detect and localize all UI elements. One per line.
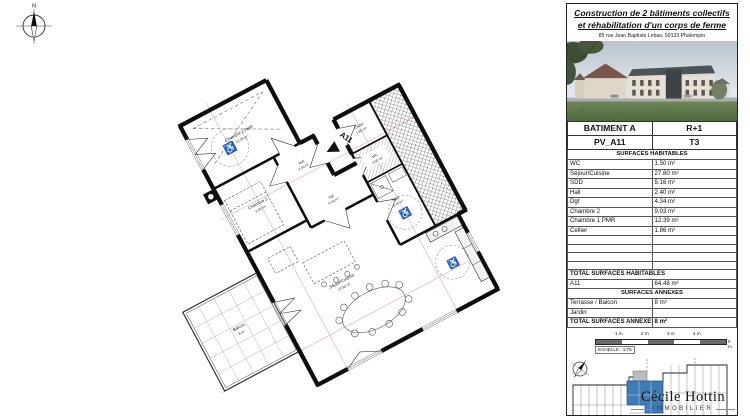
unit-balcony-key: [633, 371, 647, 381]
scale-tick: 3 m: [667, 331, 675, 336]
panel-header: Construction de 2 bâtiments collectifs e…: [567, 4, 737, 41]
compass-north-label: N: [32, 4, 36, 10]
scale-tick: 2 m: [641, 331, 649, 336]
scale-tick: 5 m: [728, 339, 732, 349]
type-cell: T3: [652, 136, 737, 150]
tagline-rule-left: [631, 409, 650, 410]
table-row: Séjour/Cuisine27.80 m²: [568, 169, 737, 179]
north-compass-icon: N: [16, 4, 52, 45]
apartment-plan: A11 ♿: [97, 18, 509, 420]
table-row: Terrasse / Balcon8 m²: [568, 299, 737, 309]
agency-name: Cécile Hottin: [631, 390, 735, 405]
table-row-empty: [568, 253, 737, 262]
building-render: [567, 41, 737, 121]
table-row-empty: [568, 236, 737, 245]
scale-bar-segments: [595, 339, 727, 345]
building-render-svg: [567, 41, 737, 121]
total-annexes-row: TOTAL SURFACES ANNEXES 8 m²: [568, 318, 737, 328]
echelle-label: ECHELLE : 1/75: [595, 346, 635, 354]
total-habitables-row: TOTAL SURFACES HABITABLES: [568, 270, 737, 280]
project-title-line1: Construction de 2 bâtiments collectifs: [571, 8, 733, 20]
batiment-cell: BATIMENT A: [568, 122, 653, 136]
agency-logo: Cécile Hottin IMMOBILIER: [631, 390, 735, 412]
info-panel: Construction de 2 bâtiments collectifs e…: [566, 3, 738, 416]
table-row: Jardin: [568, 308, 737, 318]
table-row: Chambre 1 PMR12.39 m²: [568, 217, 737, 227]
table-row-empty: [568, 261, 737, 270]
table-row-building: BATIMENT A R+1: [568, 122, 737, 136]
surfaces-table: BATIMENT A R+1 PV_A11 T3 SURFACES HABITA…: [567, 121, 737, 328]
floorplan-sheet: N: [0, 0, 563, 420]
table-row: Dgt4.34 m²: [568, 198, 737, 208]
etage-cell: R+1: [652, 122, 737, 136]
total-habitables-value-row: A11 64.48 m²: [568, 279, 737, 289]
table-row-empty: [568, 244, 737, 253]
tagline-rule-right: [716, 409, 735, 410]
scale-bar: 1 m 2 m 3 m 4 m 5 m ECHELLE : 1/75: [575, 331, 729, 355]
section-header-annexes: SURFACES ANNEXES: [568, 289, 737, 299]
site-key-plan: Cécile Hottin IMMOBILIER: [567, 355, 737, 415]
section-header-habitables: SURFACES HABITABLES: [568, 150, 737, 160]
table-row: Hall2.40 m²: [568, 188, 737, 198]
scale-tick: 4 m: [693, 331, 701, 336]
table-row: SDD5.16 m²: [568, 179, 737, 189]
table-row: Cellier1.86 m²: [568, 226, 737, 236]
table-row: WC1.50 m²: [568, 160, 737, 170]
table-row-lot: PV_A11 T3: [568, 136, 737, 150]
lot-cell: PV_A11: [568, 136, 653, 150]
floorplan-svg: N: [0, 0, 563, 420]
project-title-line2: et réhabilitation d'un corps de ferme: [571, 20, 733, 32]
table-row: Chambre 29.03 m²: [568, 207, 737, 217]
mini-compass-icon: [567, 355, 595, 384]
scale-tick: 1 m: [615, 331, 623, 336]
project-address: 85 rue Jean Baptiste Lebas, 59133 Phalem…: [571, 33, 733, 39]
agency-tagline: IMMOBILIER: [631, 406, 735, 412]
